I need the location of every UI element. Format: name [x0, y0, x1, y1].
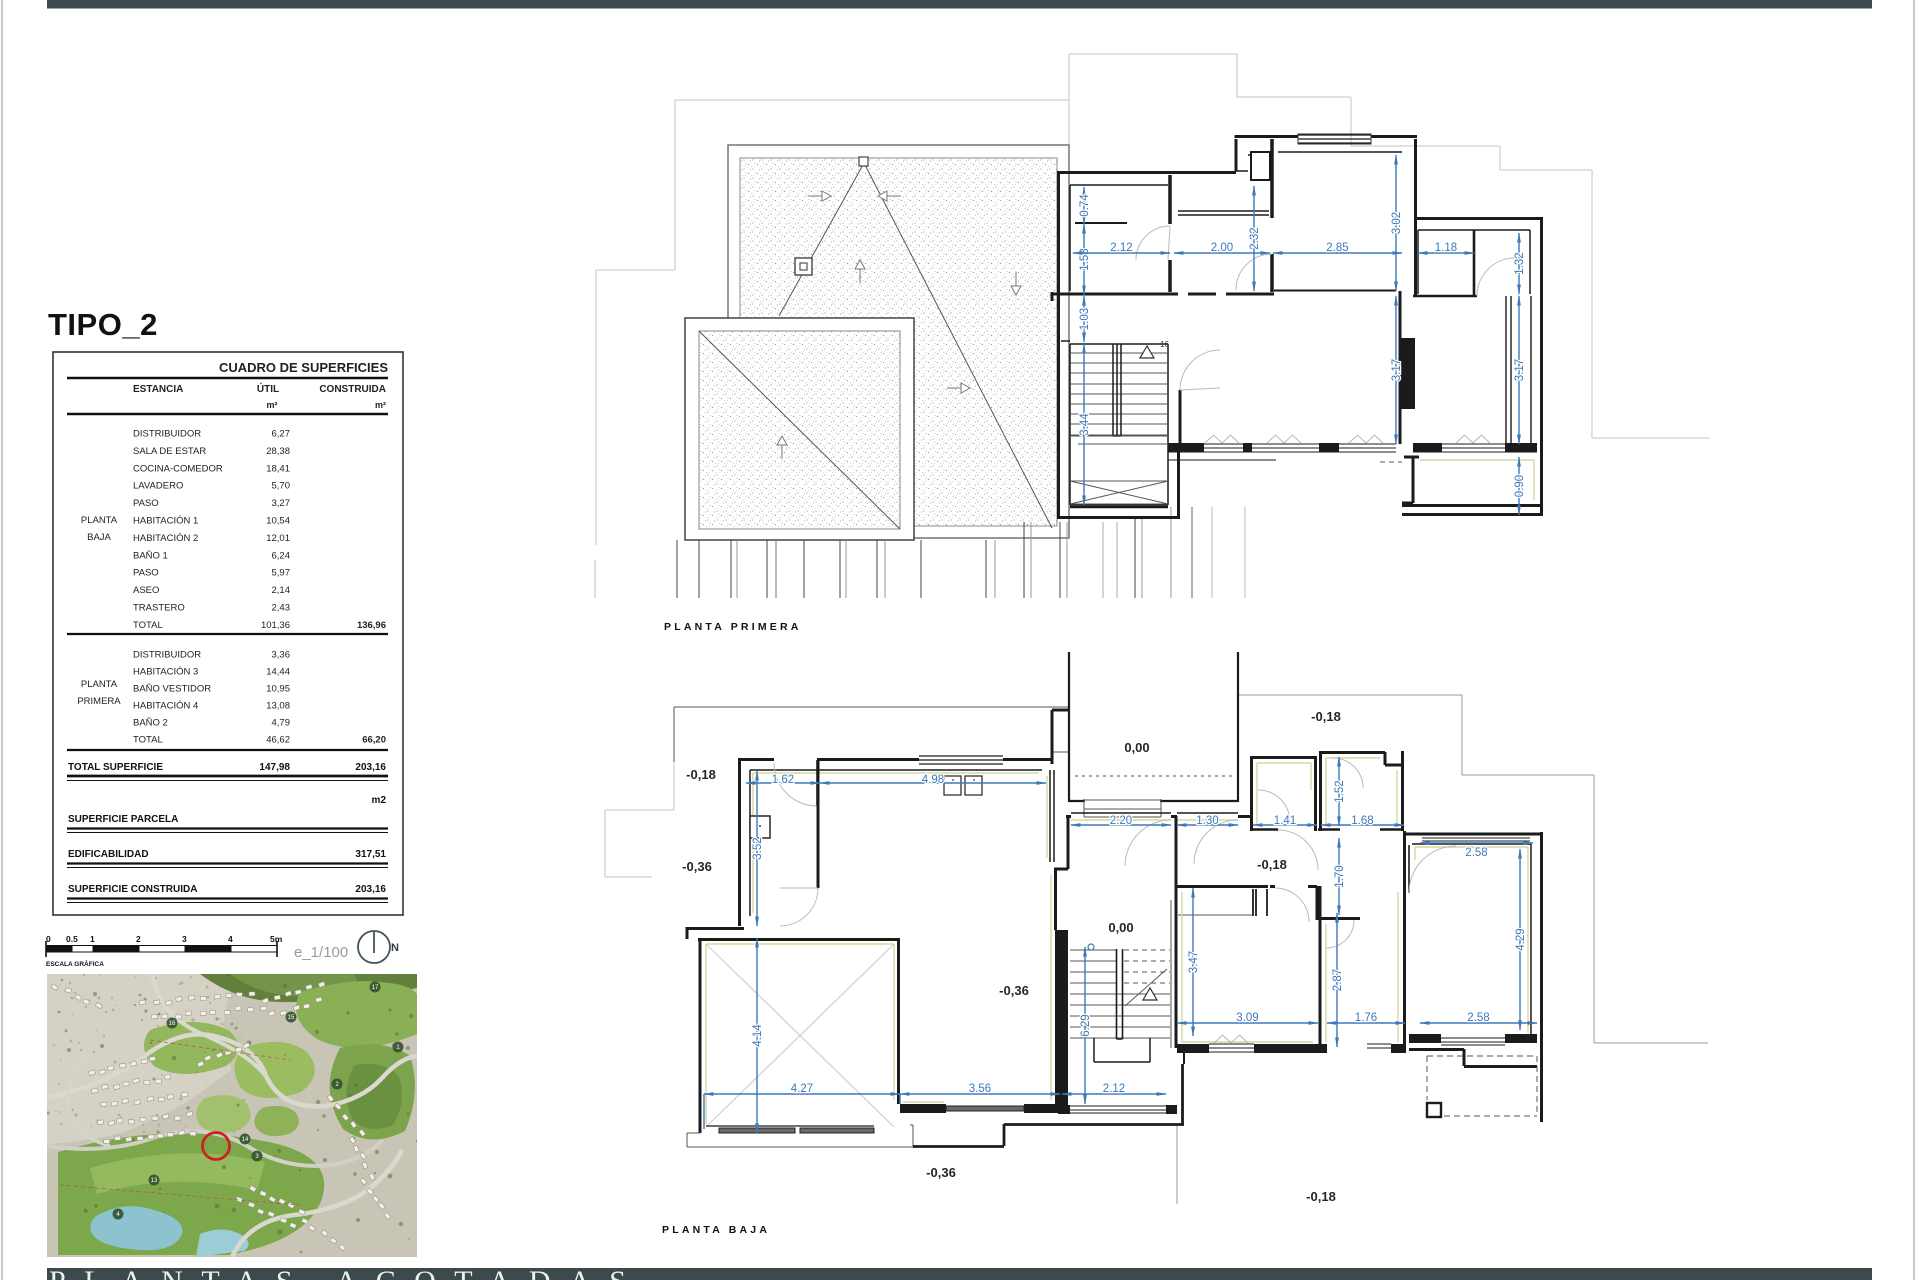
svg-text:3,36: 3,36	[272, 650, 291, 661]
svg-text:203,16: 203,16	[355, 884, 386, 895]
svg-text:0,00: 0,00	[1124, 740, 1149, 755]
svg-text:2.20: 2.20	[1110, 815, 1132, 827]
svg-text:2.85: 2.85	[1326, 242, 1348, 254]
svg-text:-0,18: -0,18	[686, 767, 716, 782]
svg-text:1.03: 1.03	[1079, 308, 1091, 330]
svg-text:28,38: 28,38	[266, 446, 290, 457]
svg-text:ESTANCIA: ESTANCIA	[133, 384, 183, 395]
svg-text:2.00: 2.00	[1211, 242, 1233, 254]
svg-text:EDIFICABILIDAD: EDIFICABILIDAD	[68, 849, 149, 860]
svg-text:3.17: 3.17	[1391, 359, 1403, 381]
svg-text:PLANTA: PLANTA	[81, 679, 118, 690]
svg-text:HABITACIÓN 3: HABITACIÓN 3	[133, 667, 198, 678]
svg-text:2.87: 2.87	[1332, 969, 1344, 991]
svg-text:1.58: 1.58	[1079, 248, 1091, 270]
svg-text:4.29: 4.29	[1515, 928, 1527, 950]
svg-text:-0,36: -0,36	[926, 1165, 956, 1180]
svg-text:ASEO: ASEO	[133, 585, 159, 596]
svg-text:PLANTA PRIMERA: PLANTA PRIMERA	[664, 621, 802, 633]
svg-text:3.56: 3.56	[969, 1083, 991, 1095]
svg-text:136,96: 136,96	[357, 620, 386, 631]
svg-text:10,95: 10,95	[266, 684, 290, 695]
svg-text:TIPO_2: TIPO_2	[48, 307, 158, 342]
svg-text:CONSTRUIDA: CONSTRUIDA	[319, 384, 386, 395]
svg-text:BAJA: BAJA	[87, 532, 111, 543]
svg-text:3.09: 3.09	[1236, 1012, 1258, 1024]
svg-text:10,54: 10,54	[266, 516, 290, 527]
svg-text:2.12: 2.12	[1110, 242, 1132, 254]
svg-text:-0,18: -0,18	[1257, 857, 1287, 872]
svg-text:ÚTIL: ÚTIL	[257, 382, 279, 395]
svg-text:2,43: 2,43	[272, 603, 291, 614]
svg-text:4.98: 4.98	[922, 774, 944, 786]
svg-text:16: 16	[169, 1021, 176, 1027]
svg-text:147,98: 147,98	[259, 762, 290, 773]
svg-text:PASO: PASO	[133, 498, 159, 509]
svg-text:3,27: 3,27	[272, 498, 291, 509]
svg-text:3.47: 3.47	[1188, 951, 1200, 973]
svg-text:101,36: 101,36	[261, 620, 290, 631]
svg-text:4.14: 4.14	[752, 1024, 764, 1047]
svg-text:5,70: 5,70	[272, 481, 291, 492]
svg-text:SALA DE ESTAR: SALA DE ESTAR	[133, 446, 206, 457]
svg-text:4: 4	[228, 934, 233, 944]
svg-text:2: 2	[136, 934, 141, 944]
svg-text:66,20: 66,20	[362, 735, 386, 746]
svg-text:2.32: 2.32	[1249, 227, 1261, 249]
svg-text:17: 17	[372, 985, 379, 991]
svg-text:PLANTA: PLANTA	[81, 515, 118, 526]
svg-text:ESCALA GRÁFICA: ESCALA GRÁFICA	[46, 959, 104, 968]
svg-text:-0,18: -0,18	[1306, 1189, 1336, 1204]
svg-text:m²: m²	[267, 400, 278, 410]
svg-text:14,44: 14,44	[266, 667, 290, 678]
svg-text:2,14: 2,14	[272, 585, 291, 596]
svg-text:COCINA-COMEDOR: COCINA-COMEDOR	[133, 463, 223, 474]
svg-text:-0,36: -0,36	[682, 859, 712, 874]
svg-text:1.76: 1.76	[1355, 1012, 1377, 1024]
svg-text:4,79: 4,79	[272, 718, 291, 729]
svg-text:m²: m²	[375, 400, 386, 410]
svg-text:PLANTA BAJA: PLANTA BAJA	[662, 1224, 770, 1236]
svg-text:PASO: PASO	[133, 568, 159, 579]
svg-text:e_1/100: e_1/100	[294, 944, 348, 961]
svg-text:3.02: 3.02	[1391, 212, 1403, 234]
svg-text:-0,18: -0,18	[1311, 709, 1341, 724]
svg-text:3.17: 3.17	[1514, 359, 1526, 381]
svg-text:1.32: 1.32	[1514, 252, 1526, 274]
svg-text:1.68: 1.68	[1351, 815, 1373, 827]
svg-text:CUADRO DE SUPERFICIES: CUADRO DE SUPERFICIES	[219, 360, 388, 375]
svg-text:13: 13	[151, 1178, 158, 1184]
svg-text:1.18: 1.18	[1435, 242, 1457, 254]
svg-text:HABITACIÓN 2: HABITACIÓN 2	[133, 533, 198, 544]
svg-text:LAVADERO: LAVADERO	[133, 481, 183, 492]
svg-text:3: 3	[182, 934, 187, 944]
svg-text:3.44: 3.44	[1079, 413, 1091, 436]
svg-text:13,08: 13,08	[266, 701, 290, 712]
svg-text:2.58: 2.58	[1465, 847, 1487, 859]
svg-text:m2: m2	[372, 795, 387, 806]
svg-text:BAÑO VESTIDOR: BAÑO VESTIDOR	[133, 684, 211, 695]
svg-text:TOTAL: TOTAL	[133, 735, 163, 746]
svg-text:BAÑO 1: BAÑO 1	[133, 550, 168, 561]
svg-text:TOTAL: TOTAL	[133, 620, 163, 631]
svg-text:N: N	[391, 942, 399, 954]
svg-text:1.62: 1.62	[772, 774, 794, 786]
svg-text:1: 1	[90, 934, 95, 944]
svg-text:SUPERFICIE PARCELA: SUPERFICIE PARCELA	[68, 814, 178, 825]
svg-text:14: 14	[242, 1137, 249, 1143]
svg-text:HABITACIÓN 4: HABITACIÓN 4	[133, 701, 198, 712]
svg-text:1.41: 1.41	[1274, 815, 1296, 827]
svg-text:0.74: 0.74	[1079, 194, 1091, 217]
svg-text:PRIMERA: PRIMERA	[77, 696, 121, 707]
svg-text:DISTRIBUIDOR: DISTRIBUIDOR	[133, 650, 201, 661]
svg-text:18,41: 18,41	[266, 463, 290, 474]
svg-text:6,27: 6,27	[272, 429, 291, 440]
svg-text:2.12: 2.12	[1103, 1083, 1125, 1095]
svg-text:317,51: 317,51	[355, 849, 386, 860]
svg-text:0,00: 0,00	[1108, 920, 1133, 935]
svg-text:203,16: 203,16	[355, 762, 386, 773]
svg-text:4.27: 4.27	[791, 1083, 813, 1095]
svg-text:HABITACIÓN 1: HABITACIÓN 1	[133, 516, 198, 527]
svg-text:5,97: 5,97	[272, 568, 291, 579]
svg-text:46,62: 46,62	[266, 735, 290, 746]
svg-text:TOTAL SUPERFICIE: TOTAL SUPERFICIE	[68, 762, 163, 773]
svg-text:TRASTERO: TRASTERO	[133, 603, 185, 614]
svg-text:0.5: 0.5	[66, 934, 78, 944]
svg-text:-0,36: -0,36	[999, 983, 1029, 998]
svg-text:3.52: 3.52	[752, 837, 764, 859]
svg-text:12,01: 12,01	[266, 533, 290, 544]
svg-text:6.29: 6.29	[1080, 1014, 1092, 1036]
svg-text:16: 16	[1160, 340, 1169, 349]
svg-text:PLANTAS ACOTADAS: PLANTAS ACOTADAS	[49, 1265, 644, 1280]
svg-text:1.52: 1.52	[1334, 780, 1346, 802]
svg-text:15: 15	[288, 1015, 295, 1021]
svg-text:DISTRIBUIDOR: DISTRIBUIDOR	[133, 429, 201, 440]
svg-text:BAÑO 2: BAÑO 2	[133, 718, 168, 729]
svg-text:2.58: 2.58	[1467, 1012, 1489, 1024]
svg-text:SUPERFICIE CONSTRUIDA: SUPERFICIE CONSTRUIDA	[68, 884, 197, 895]
svg-text:1.70: 1.70	[1334, 865, 1346, 887]
svg-text:1.30: 1.30	[1196, 815, 1218, 827]
svg-text:6,24: 6,24	[272, 550, 291, 561]
svg-text:0.90: 0.90	[1514, 475, 1526, 497]
